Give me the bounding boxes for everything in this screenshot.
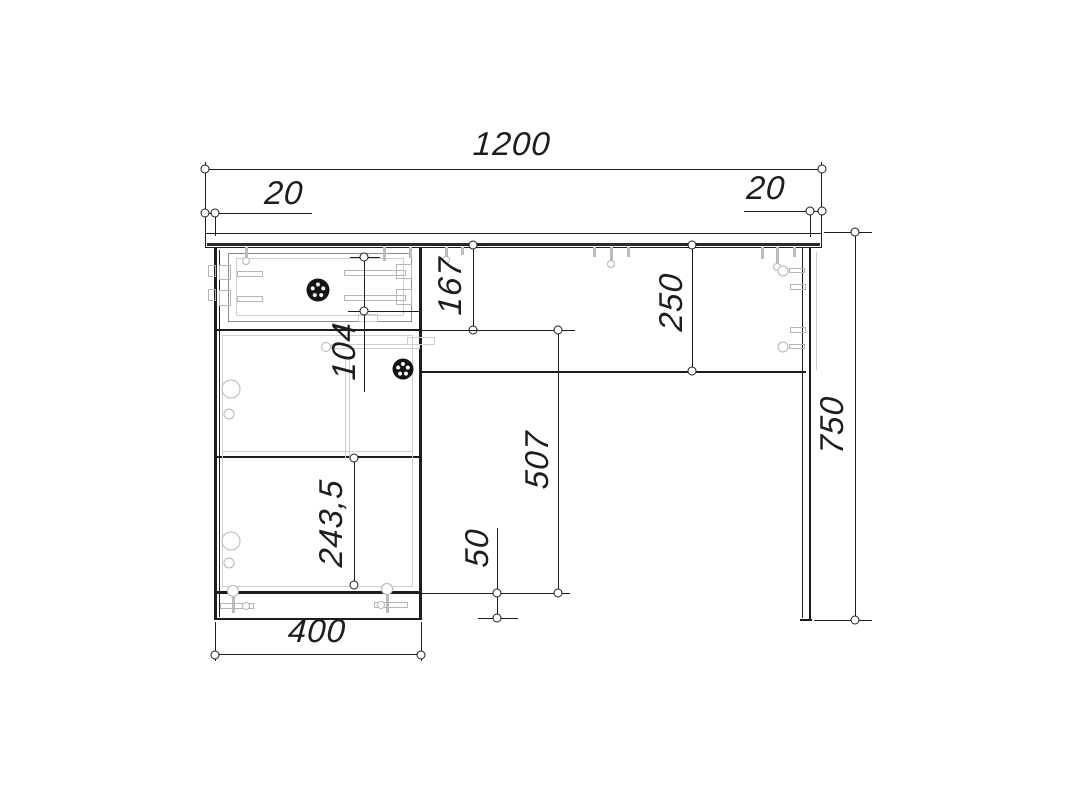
dowel-pin: [627, 247, 630, 257]
hinge-cup-bottom: [222, 532, 241, 551]
dowel-pin: [776, 247, 779, 264]
door-knob: [393, 359, 414, 380]
leg-clip-2: [790, 327, 806, 333]
dowel-pin: [793, 247, 796, 257]
dim-overhang-left-label: 20: [263, 174, 304, 212]
leg-cam-rod-bottom: [789, 344, 805, 349]
dim-pedestal-width-label: 400: [287, 612, 348, 650]
pedestal-right-panel: [419, 248, 422, 619]
dim-line-plinth: [497, 528, 498, 618]
dim-endpoint: [818, 165, 827, 174]
divider-bracket: [407, 337, 435, 345]
dim-endpoint: [493, 614, 502, 623]
dim-line-door-opening: [558, 330, 559, 593]
plinth-bolt-right: [377, 601, 385, 609]
dim-line-lower-door: [354, 458, 355, 585]
dim-back-rail-label: 250: [652, 272, 690, 333]
right-leg-inner-line: [802, 248, 804, 618]
right-leg-bottom-line: [800, 619, 812, 621]
leg-cam-rod-top: [789, 268, 805, 273]
dim-line-overhang-left: [205, 213, 312, 214]
slide-bracket-left-1: [219, 265, 231, 280]
dim-endpoint: [201, 165, 210, 174]
hinge-cup-top: [222, 380, 241, 399]
extension-line: [824, 232, 872, 233]
dowel-pin: [761, 247, 764, 259]
tabletop: [205, 233, 822, 248]
side-tick-2: [208, 289, 216, 301]
dowel-pin: [593, 247, 596, 257]
slide-bracket-left-2: [219, 290, 231, 306]
dim-overall-width-label: 1200: [472, 125, 552, 163]
dowel-pin: [383, 247, 386, 261]
drawer-slide-left-1: [237, 271, 263, 277]
dim-drawer-front-label: 104: [325, 321, 363, 382]
right-leg-back-edge: [816, 252, 817, 370]
dim-line-drawer-front: [364, 257, 365, 392]
dim-endpoint: [688, 367, 697, 376]
tabletop-edge-band: [207, 243, 820, 246]
dim-line-overall-height: [855, 232, 856, 620]
dim-endpoint: [350, 454, 359, 463]
dim-endpoint: [211, 209, 220, 218]
dim-door-opening-label: 507: [518, 430, 556, 491]
hinge-screw-bottom: [224, 558, 235, 569]
dim-endpoint: [554, 326, 563, 335]
dowel-cap: [242, 257, 250, 265]
dim-endpoint: [851, 228, 860, 237]
extension-line: [814, 620, 872, 621]
dim-drawer-section-label: 167: [431, 256, 469, 317]
dim-lower-door-label: 243,5: [312, 478, 350, 568]
dim-plinth-label: 50: [458, 527, 496, 568]
dim-endpoint: [851, 616, 860, 625]
plinth-bolt-left: [242, 602, 250, 610]
right-leg-outer-line: [809, 248, 811, 620]
plinth-cam-left: [227, 585, 239, 597]
drawer-bottom-clip: [358, 314, 378, 322]
dim-endpoint: [554, 589, 563, 598]
dim-line-pedestal-width: [215, 654, 421, 655]
leg-cam-top: [778, 266, 789, 277]
dim-endpoint: [360, 253, 369, 262]
dim-endpoint: [350, 581, 359, 590]
leg-clip-1: [790, 284, 806, 290]
dim-endpoint: [469, 241, 478, 250]
dim-endpoint: [417, 651, 426, 660]
dim-endpoint: [201, 209, 210, 218]
dim-endpoint: [806, 207, 815, 216]
dowel-pin: [461, 247, 464, 255]
slide-bracket-right-1: [396, 264, 412, 279]
technical-drawing-canvas: 1200 20 20 750 400 167 104 250 507: [0, 0, 1067, 800]
slide-bracket-right-2: [396, 289, 412, 305]
back-rail-bottom-line: [421, 371, 806, 374]
hinge-screw-top: [224, 409, 235, 420]
dim-endpoint: [688, 241, 697, 250]
dim-endpoint: [493, 589, 502, 598]
drawer-slide-left-2: [237, 296, 263, 302]
leg-cam-bottom: [778, 342, 789, 353]
drawer-knob: [307, 279, 330, 302]
dim-endpoint: [211, 651, 220, 660]
plinth-cam-right: [381, 583, 393, 595]
dim-overhang-right-label: 20: [745, 169, 786, 207]
dowel-cap: [607, 260, 615, 268]
dim-line-back-rail: [692, 245, 693, 371]
extension-line: [422, 330, 575, 331]
side-tick-1: [208, 265, 216, 277]
dim-endpoint: [818, 207, 827, 216]
dowel-pin: [610, 247, 613, 261]
dowel-pin: [409, 247, 412, 258]
dim-line-drawer-section: [473, 245, 474, 330]
dim-endpoint: [360, 307, 369, 316]
pedestal-left-panel: [214, 248, 217, 619]
dim-line-overall-width: [205, 169, 822, 170]
dim-overall-height-label: 750: [813, 395, 851, 456]
drawer-divider: [214, 329, 422, 332]
